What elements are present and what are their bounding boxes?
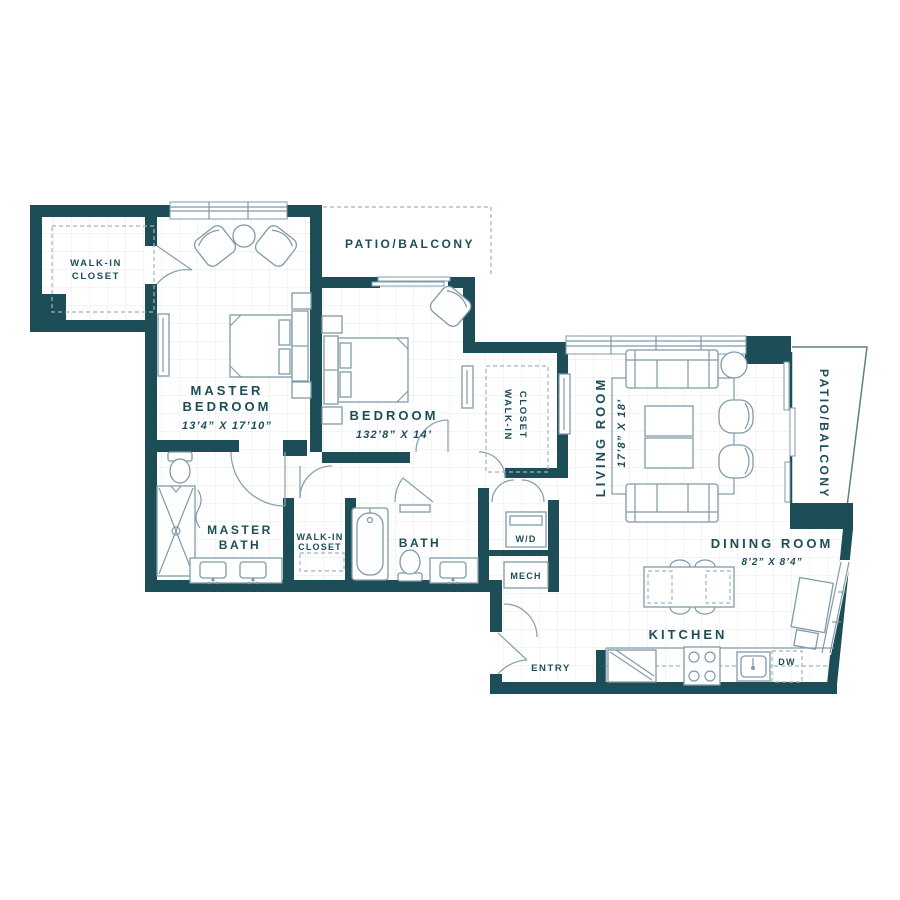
- wic-top-label-line2: CLOSET: [72, 271, 120, 282]
- bathtub-icon: [352, 508, 388, 580]
- shower-icon: [157, 486, 195, 576]
- sofa-icon: [626, 350, 718, 388]
- coffee-table-icon: [645, 406, 693, 436]
- patio-right-label: PATIO/BALCONY: [817, 369, 831, 499]
- barrel-chair-icon: [719, 445, 753, 478]
- wic-small-label-line1: WALK-IN: [297, 532, 344, 542]
- coffee-table-icon: [645, 438, 693, 468]
- mech-closet-icon: MECH: [504, 562, 548, 588]
- toilet-icon: [168, 452, 192, 483]
- patio-top-label: PATIO/BALCONY: [345, 237, 475, 251]
- dining-room-dims: 8’2” X 8’4”: [741, 557, 802, 568]
- master-bath-label-line2: BATH: [219, 538, 261, 552]
- dining-table-icon: [644, 567, 734, 607]
- vanity-icon: [430, 558, 478, 584]
- toilet-icon: [398, 550, 422, 581]
- floor-plan: DW: [0, 0, 900, 900]
- living-room-dims: 17’8” X 18’: [616, 399, 628, 468]
- master-bedroom-dims: 13’4” X 17’10”: [182, 420, 272, 432]
- sink-icon: [737, 652, 770, 681]
- shelf-icon: [400, 505, 430, 512]
- bedroom-dims: 132’8” X 14’: [356, 429, 432, 441]
- nightstand-icon: [322, 407, 342, 424]
- master-bath-label-line1: MASTER: [207, 523, 273, 537]
- mech-label: MECH: [510, 571, 541, 581]
- nightstand-icon: [292, 382, 311, 398]
- sofa-icon: [626, 484, 718, 522]
- round-table-icon: [233, 225, 255, 247]
- master-bed-icon: [230, 311, 308, 381]
- stove-icon: [684, 647, 720, 685]
- wic-top-label-line1: WALK-IN: [70, 258, 122, 269]
- bath-label: BATH: [399, 536, 441, 550]
- double-vanity-icon: [190, 558, 282, 584]
- living-room-label: LIVING ROOM: [593, 377, 608, 497]
- console-icon: [559, 374, 570, 434]
- fridge-icon: [608, 650, 656, 682]
- dresser-icon: [158, 314, 169, 376]
- bedroom-bed-icon: [324, 336, 408, 404]
- bedroom-patio-slider: [372, 277, 450, 286]
- washer-dryer-label: W/D: [515, 534, 536, 544]
- side-table-icon: [721, 352, 747, 378]
- bedroom-label: BEDROOM: [350, 408, 439, 423]
- kitchen-label: KITCHEN: [649, 627, 728, 642]
- dresser-icon: [462, 366, 473, 408]
- master-bedroom-window: [170, 202, 287, 219]
- master-bedroom-label-line1: MASTER: [191, 383, 264, 398]
- wic-mid-label-line1: WALK-IN: [502, 389, 513, 441]
- master-bedroom-label-line2: BEDROOM: [183, 399, 272, 414]
- wic-mid-label-line2: CLOSET: [517, 391, 528, 439]
- barrel-chair-icon: [719, 400, 753, 433]
- nightstand-icon: [292, 293, 311, 309]
- entry-label: ENTRY: [531, 663, 571, 674]
- floor-plan-page: DW: [0, 0, 900, 900]
- dishwasher-label: DW: [778, 657, 795, 667]
- nightstand-icon: [322, 316, 342, 333]
- dining-room-label: DINING ROOM: [711, 536, 834, 551]
- wic-small-label-line2: CLOSET: [298, 542, 342, 552]
- washer-dryer-icon: W/D: [506, 512, 546, 547]
